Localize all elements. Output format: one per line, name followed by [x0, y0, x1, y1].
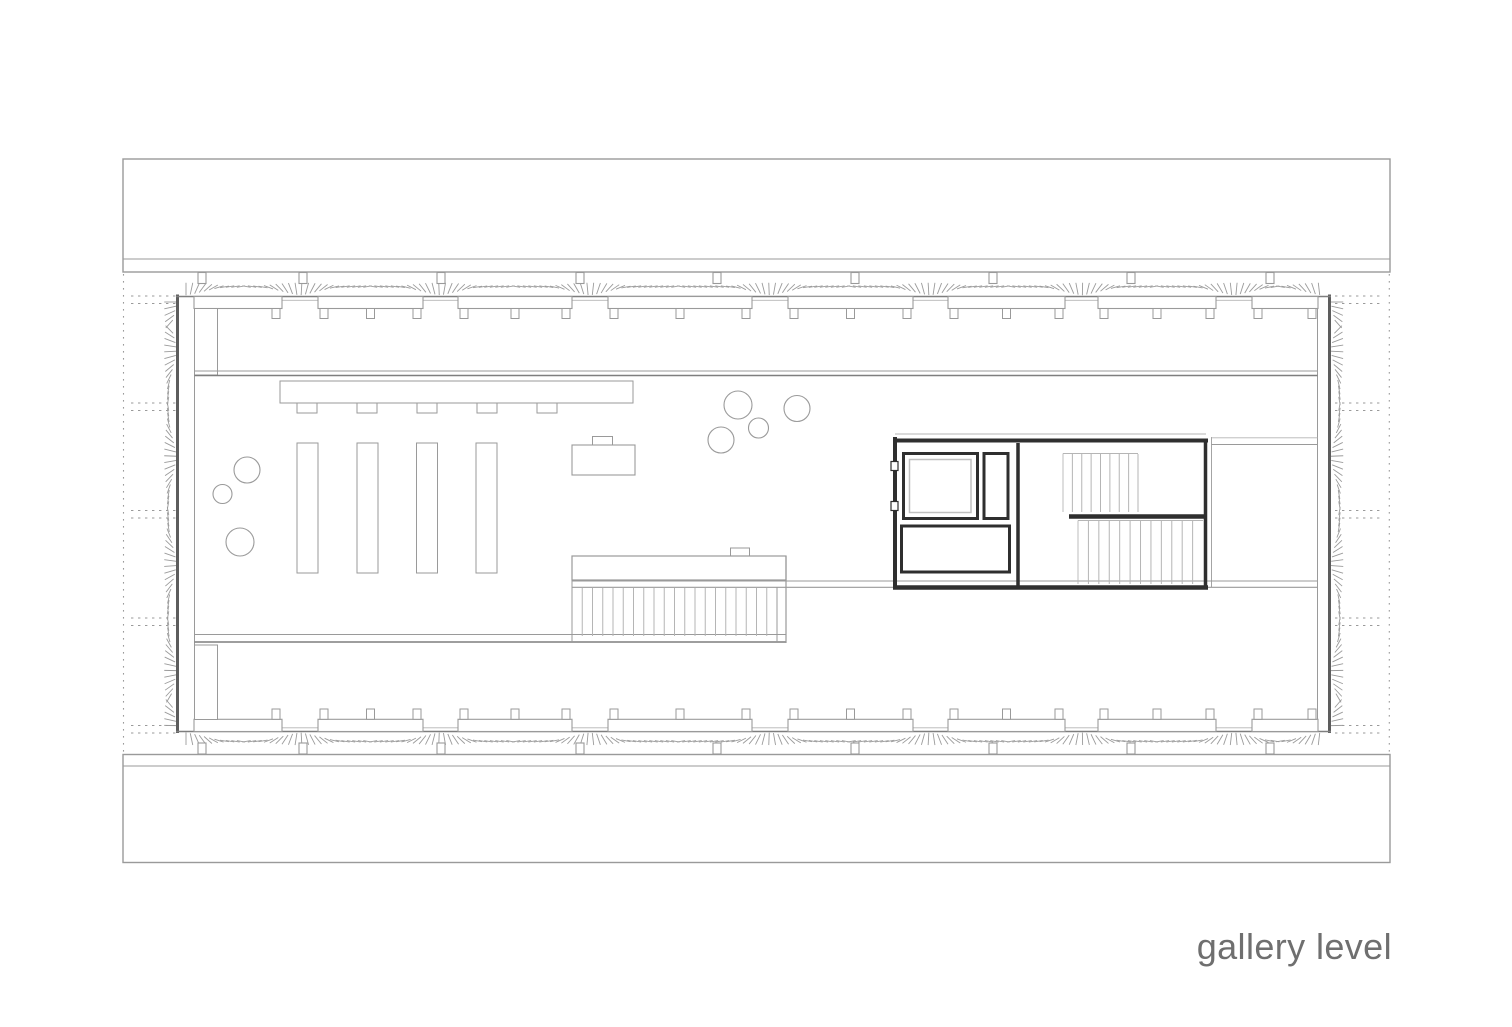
side-room: [1212, 438, 1318, 445]
service-core: [891, 434, 1212, 590]
core-stair-upper-flight: [1072, 454, 1138, 512]
main-stair: [572, 548, 786, 643]
core-stair-lower-flight: [1088, 521, 1192, 584]
corner-wall-benches: [195, 309, 218, 720]
elevator-shaft: [904, 454, 978, 519]
floor-plan-page: gallery level: [0, 0, 1512, 1027]
perimeter-insulation-hatch: [164, 283, 1343, 745]
display-plinths: [297, 443, 497, 573]
core-storage-room: [902, 526, 1010, 572]
main-stair-treads: [582, 588, 767, 637]
lower-roof-band: [123, 755, 1390, 863]
display-counter: [280, 381, 633, 403]
exterior-walls: [176, 295, 1331, 734]
display-counter-legs: [297, 403, 557, 413]
window-bench-row-top: [194, 297, 1318, 319]
core-shaft-room: [984, 454, 1008, 519]
upper-roof-band: [123, 159, 1390, 272]
reception-desk: [572, 437, 635, 476]
level-caption: gallery level: [1197, 926, 1392, 968]
floor-plan-drawing: [0, 0, 1512, 1027]
